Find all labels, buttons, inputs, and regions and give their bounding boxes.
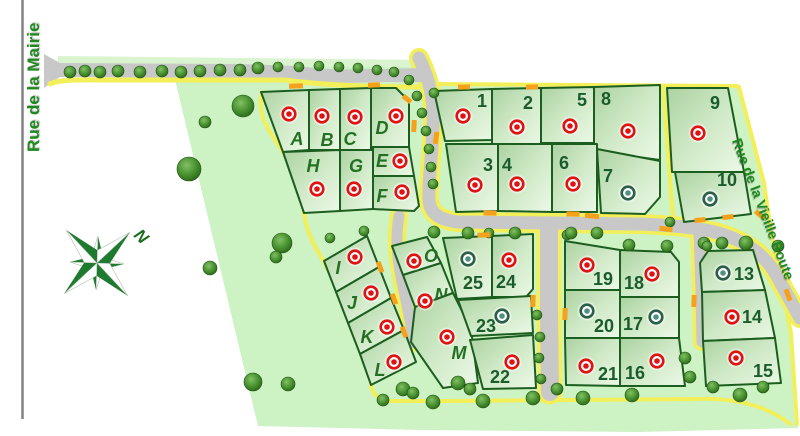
lot-label: 18	[624, 273, 644, 293]
status-marker-red-C	[346, 108, 365, 127]
status-marker-red-8	[619, 122, 638, 141]
lot-label: 21	[598, 364, 618, 384]
lot-13[interactable]: 13	[700, 250, 765, 292]
status-marker-red-6	[564, 175, 583, 194]
tree-icon	[733, 388, 747, 402]
tree-icon	[464, 383, 476, 395]
status-marker-green-13	[714, 264, 733, 283]
lot-label: J	[347, 293, 358, 313]
parcel-shape	[700, 250, 765, 292]
tree-icon	[64, 66, 76, 78]
tree-icon	[551, 383, 563, 395]
tree-icon	[426, 162, 436, 172]
lot-label: O	[424, 246, 438, 266]
tree-icon	[194, 65, 206, 77]
tree-icon	[716, 237, 728, 249]
tree-icon	[534, 353, 544, 363]
tree-icon	[404, 75, 414, 85]
driveway-marker	[526, 84, 538, 89]
tree-icon	[94, 66, 106, 78]
lot-label: 16	[625, 363, 645, 383]
status-marker-red-14	[723, 308, 742, 327]
lot-label: 8	[601, 89, 611, 109]
tree-icon	[112, 65, 124, 77]
site-map: ABCDEFGH12583467910IJKLONM25242322191820…	[0, 0, 800, 436]
status-marker-green-25	[459, 250, 478, 269]
status-marker-red-3	[466, 176, 485, 195]
lot-label: 25	[463, 273, 483, 293]
tree-icon	[739, 236, 753, 250]
lot-label: 1	[477, 91, 487, 111]
tree-icon	[707, 381, 719, 393]
status-marker-red-G	[345, 180, 364, 199]
tree-icon	[412, 91, 422, 101]
driveway-marker	[289, 83, 303, 88]
tree-icon	[591, 227, 603, 239]
lot-7[interactable]: 7	[597, 149, 660, 214]
tree-icon	[177, 157, 201, 181]
tree-icon	[625, 388, 639, 402]
lot-label: 9	[710, 93, 720, 113]
lot-label: H	[307, 156, 321, 176]
tree-icon	[314, 61, 324, 71]
tree-icon	[702, 241, 712, 251]
tree-icon	[353, 63, 363, 73]
tree-icon	[232, 95, 254, 117]
lot-label: 7	[603, 166, 613, 186]
parcel-shape	[492, 88, 541, 147]
lot-label: A	[290, 129, 304, 149]
driveway-marker	[530, 295, 535, 307]
status-marker-red-M	[438, 328, 457, 347]
driveway-marker	[477, 232, 490, 237]
status-marker-red-2	[508, 118, 527, 137]
lot-label: 4	[502, 155, 512, 175]
tree-icon	[476, 394, 490, 408]
tree-icon	[372, 65, 382, 75]
tree-icon	[199, 116, 211, 128]
tree-icon	[679, 352, 691, 364]
tree-icon	[281, 377, 295, 391]
tree-icon	[244, 373, 262, 391]
status-marker-red-J	[362, 284, 381, 303]
tree-icon	[294, 62, 304, 72]
lot-label: B	[321, 130, 334, 150]
status-marker-green-20	[578, 302, 597, 321]
status-marker-red-I	[346, 248, 365, 267]
tree-icon	[665, 217, 675, 227]
driveway-marker	[562, 308, 567, 320]
tree-icon	[214, 64, 226, 76]
tree-icon	[272, 233, 292, 253]
status-marker-red-22	[503, 353, 522, 372]
lot-label: 19	[593, 269, 613, 289]
lot-label: 13	[734, 264, 754, 284]
tree-icon	[429, 88, 439, 98]
lot-label: L	[375, 360, 386, 380]
tree-icon	[426, 395, 440, 409]
lot-label: M	[452, 343, 468, 363]
tree-icon	[421, 126, 431, 136]
compass-rose	[33, 199, 160, 326]
tree-icon	[359, 226, 369, 236]
tree-icon	[377, 394, 389, 406]
status-marker-red-15	[727, 349, 746, 368]
tree-icon	[252, 62, 264, 74]
tree-icon	[334, 62, 344, 72]
lot-label: 17	[623, 314, 643, 334]
status-marker-green-10	[701, 190, 720, 209]
status-marker-red-A	[280, 105, 299, 124]
lot-label: G	[349, 156, 363, 176]
tree-icon	[270, 251, 282, 263]
status-marker-red-16	[648, 352, 667, 371]
lot-label: C	[344, 129, 358, 149]
tree-icon	[79, 65, 91, 77]
tree-icon	[134, 66, 146, 78]
status-marker-green-17	[647, 308, 666, 327]
tree-icon	[407, 387, 419, 399]
lot-label: 3	[483, 155, 493, 175]
tree-icon	[536, 374, 546, 384]
status-marker-red-E	[391, 152, 410, 171]
tree-icon	[565, 227, 577, 239]
status-marker-red-K	[378, 318, 397, 337]
status-marker-red-24	[500, 251, 519, 270]
road-stub-mid	[549, 228, 550, 392]
lot-label: K	[361, 327, 376, 347]
tree-icon	[273, 62, 283, 72]
status-marker-red-D	[387, 107, 406, 126]
lot-label: F	[377, 186, 389, 206]
status-marker-red-4	[508, 175, 527, 194]
status-marker-red-1	[454, 107, 473, 126]
tree-icon	[684, 371, 696, 383]
tree-icon	[424, 144, 434, 154]
tree-icon	[203, 261, 217, 275]
status-marker-green-23	[493, 307, 512, 326]
tree-icon	[234, 64, 246, 76]
lot-label: 15	[753, 361, 773, 381]
lot-label: 2	[523, 93, 533, 113]
status-marker-red-H	[308, 180, 327, 199]
driveway-marker	[483, 210, 496, 215]
tree-icon	[535, 332, 545, 342]
street-label-mairie: Rue de la Mairie	[24, 23, 44, 152]
status-marker-red-B	[313, 107, 332, 126]
status-marker-red-N	[416, 292, 435, 311]
lot-label: 14	[742, 307, 762, 327]
driveway-marker	[566, 211, 579, 216]
lot-label: 5	[577, 90, 587, 110]
lot-label: 20	[594, 316, 614, 336]
north-label: N	[130, 225, 153, 248]
status-marker-red-9	[689, 124, 708, 143]
tree-icon	[532, 310, 542, 320]
status-marker-red-21	[577, 357, 596, 376]
tree-icon	[661, 240, 673, 252]
site-plan: ABCDEFGH12583467910IJKLONM25242322191820…	[0, 0, 800, 436]
sidewalk-line	[432, 84, 737, 86]
tree-icon	[325, 233, 335, 243]
status-marker-red-O	[405, 252, 424, 271]
tree-icon	[509, 227, 521, 239]
tree-icon	[757, 381, 769, 393]
lot-label: 6	[559, 153, 569, 173]
tree-icon	[428, 179, 438, 189]
tree-icon	[156, 65, 168, 77]
tree-icon	[175, 66, 187, 78]
tree-icon	[451, 376, 465, 390]
tree-icon	[428, 226, 440, 238]
tree-icon	[526, 391, 540, 405]
tree-icon	[462, 227, 474, 239]
driveway-marker	[368, 82, 380, 87]
status-marker-red-18	[643, 265, 662, 284]
tree-icon	[389, 67, 399, 77]
lot-label: E	[376, 151, 389, 171]
status-marker-red-L	[385, 353, 404, 372]
status-marker-red-19	[578, 256, 597, 275]
driveway-marker	[411, 120, 417, 132]
driveway-marker	[458, 84, 470, 89]
lot-label: 24	[496, 272, 516, 292]
tree-icon	[623, 239, 635, 251]
tree-icon	[417, 108, 427, 118]
tree-icon	[576, 391, 590, 405]
lot-label: 10	[717, 170, 737, 190]
lot-4[interactable]: 4	[498, 144, 552, 212]
lot-2[interactable]: 2	[492, 88, 541, 147]
status-marker-red-F	[393, 183, 412, 202]
lot-label: D	[376, 118, 389, 138]
driveway-marker	[691, 295, 696, 307]
status-marker-red-5	[561, 117, 580, 136]
status-marker-green-7	[619, 184, 638, 203]
